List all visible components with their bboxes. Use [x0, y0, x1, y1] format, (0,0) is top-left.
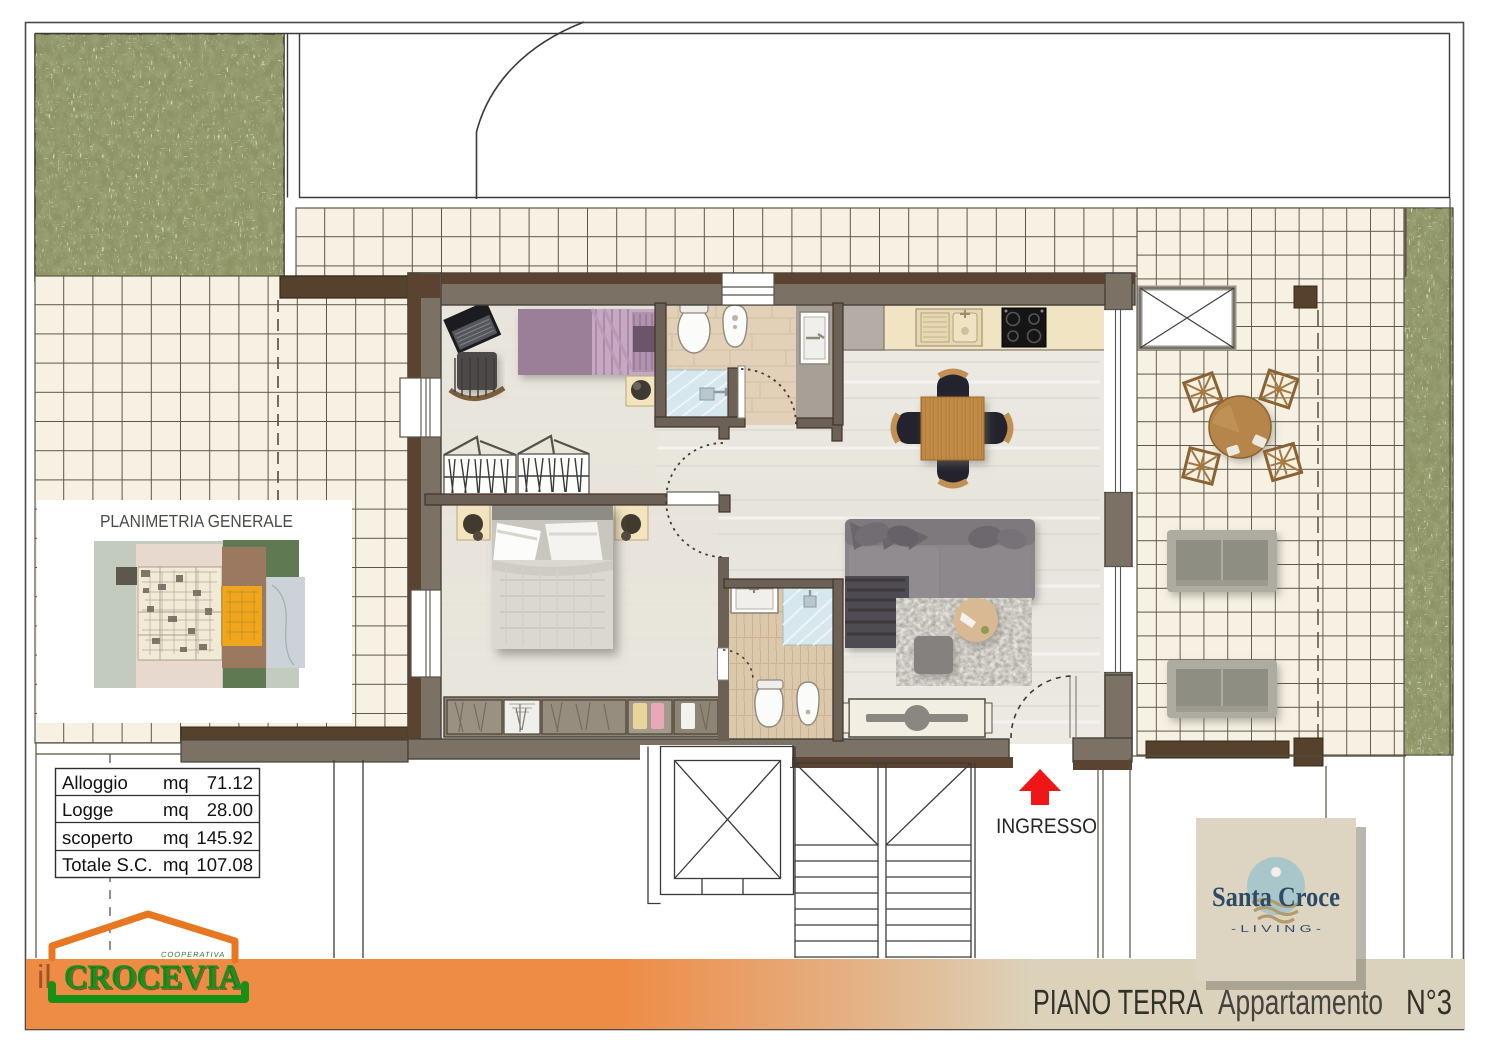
- svg-text:mq: mq: [163, 827, 189, 848]
- svg-text:- L I V I N G -: - L I V I N G -: [1231, 924, 1321, 935]
- svg-text:145.92: 145.92: [196, 827, 253, 848]
- svg-text:INGRESSO: INGRESSO: [996, 815, 1097, 838]
- svg-text:Totale S.C.: Totale S.C.: [62, 854, 153, 875]
- svg-text:CROCEVIA: CROCEVIA: [64, 959, 242, 996]
- svg-text:COOPERATIVA: COOPERATIVA: [161, 950, 225, 959]
- svg-text:PIANO TERRA: PIANO TERRA: [1033, 983, 1203, 1022]
- svg-text:N°3: N°3: [1406, 983, 1452, 1022]
- svg-text:mq: mq: [163, 772, 189, 793]
- svg-text:Logge: Logge: [62, 799, 113, 820]
- svg-text:PLANIMETRIA GENERALE: PLANIMETRIA GENERALE: [100, 511, 293, 531]
- svg-text:mq: mq: [163, 854, 189, 875]
- svg-text:28.00: 28.00: [207, 799, 253, 820]
- svg-text:Alloggio: Alloggio: [62, 772, 128, 793]
- svg-text:107.08: 107.08: [196, 854, 253, 875]
- svg-text:scoperto: scoperto: [62, 827, 133, 848]
- svg-text:mq: mq: [163, 799, 189, 820]
- svg-text:Santa Croce: Santa Croce: [1212, 882, 1340, 913]
- svg-text:71.12: 71.12: [207, 772, 253, 793]
